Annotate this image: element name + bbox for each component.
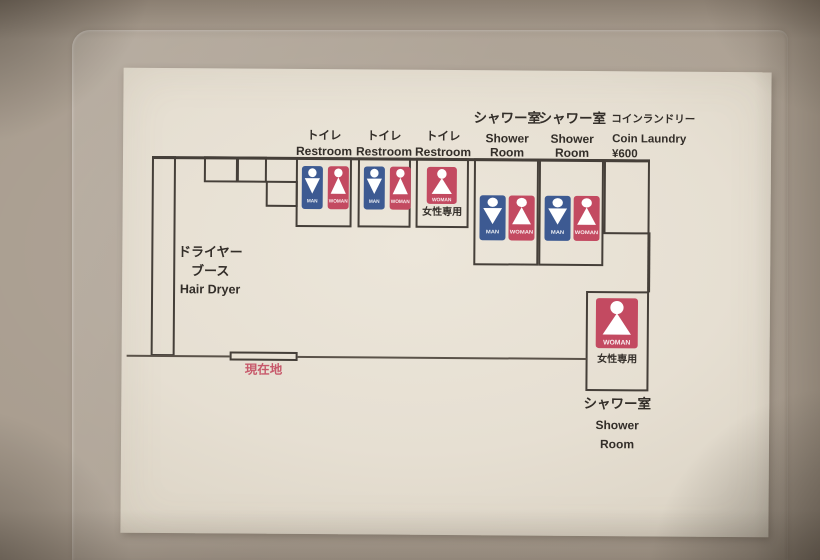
counter-box-2 [237, 157, 267, 183]
counter-box-3 [266, 181, 298, 207]
shower-2-label-en1: Shower [532, 133, 612, 147]
hair-dryer-label-jp2: ブース [170, 264, 250, 279]
coin-laundry-room [603, 159, 650, 234]
current-location-label: 現在地 [223, 363, 303, 377]
svg-text:WOMAN: WOMAN [603, 339, 630, 346]
svg-text:MAN: MAN [369, 199, 380, 205]
woman-icon: WOMAN [328, 166, 349, 209]
women-shower-label-jp: シャワー室 [567, 397, 667, 413]
women-only-note: 女性専用 [416, 207, 469, 218]
current-location-marker [230, 351, 298, 360]
woman-icon: WOMAN [390, 167, 411, 210]
svg-text:WOMAN: WOMAN [510, 230, 533, 236]
hair-dryer-label-jp1: ドライヤー [170, 245, 250, 260]
counter-box-1 [204, 156, 238, 182]
man-icon: MAN [302, 166, 323, 209]
shower-2-label-jp: シャワー室 [522, 112, 622, 128]
svg-text:WOMAN: WOMAN [391, 199, 410, 205]
woman-icon: WOMAN [573, 196, 599, 241]
woman-icon: WOMAN [596, 298, 638, 348]
right-wall [647, 232, 650, 292]
hair-dryer-label-en: Hair Dryer [170, 283, 250, 297]
svg-text:MAN: MAN [307, 198, 318, 204]
corridor-floor-line [127, 355, 587, 360]
svg-text:WOMAN: WOMAN [329, 198, 348, 204]
coin-laundry-label-en: Coin Laundry [612, 133, 712, 146]
women-only-note: 女性専用 [586, 354, 649, 365]
woman-icon: WOMAN [508, 195, 534, 240]
woman-icon: WOMAN [427, 167, 457, 204]
svg-text:WOMAN: WOMAN [432, 197, 452, 203]
svg-text:WOMAN: WOMAN [575, 230, 598, 236]
svg-text:MAN: MAN [551, 230, 564, 236]
svg-text:MAN: MAN [486, 230, 499, 236]
women-shower-label-en1: Shower [577, 419, 657, 433]
man-icon: MAN [364, 166, 385, 209]
man-icon: MAN [544, 196, 570, 241]
floor-map-paper: トイレ トイレ トイレ Restroom Restroom Restroom シ… [120, 68, 771, 538]
women-shower-label-en2: Room [577, 438, 657, 452]
man-icon: MAN [479, 195, 505, 240]
coin-laundry-label-jp: コインランドリー [611, 114, 731, 126]
photo-of-facility-map: { "colors": { "wall_background": "#a89c8… [0, 0, 820, 560]
